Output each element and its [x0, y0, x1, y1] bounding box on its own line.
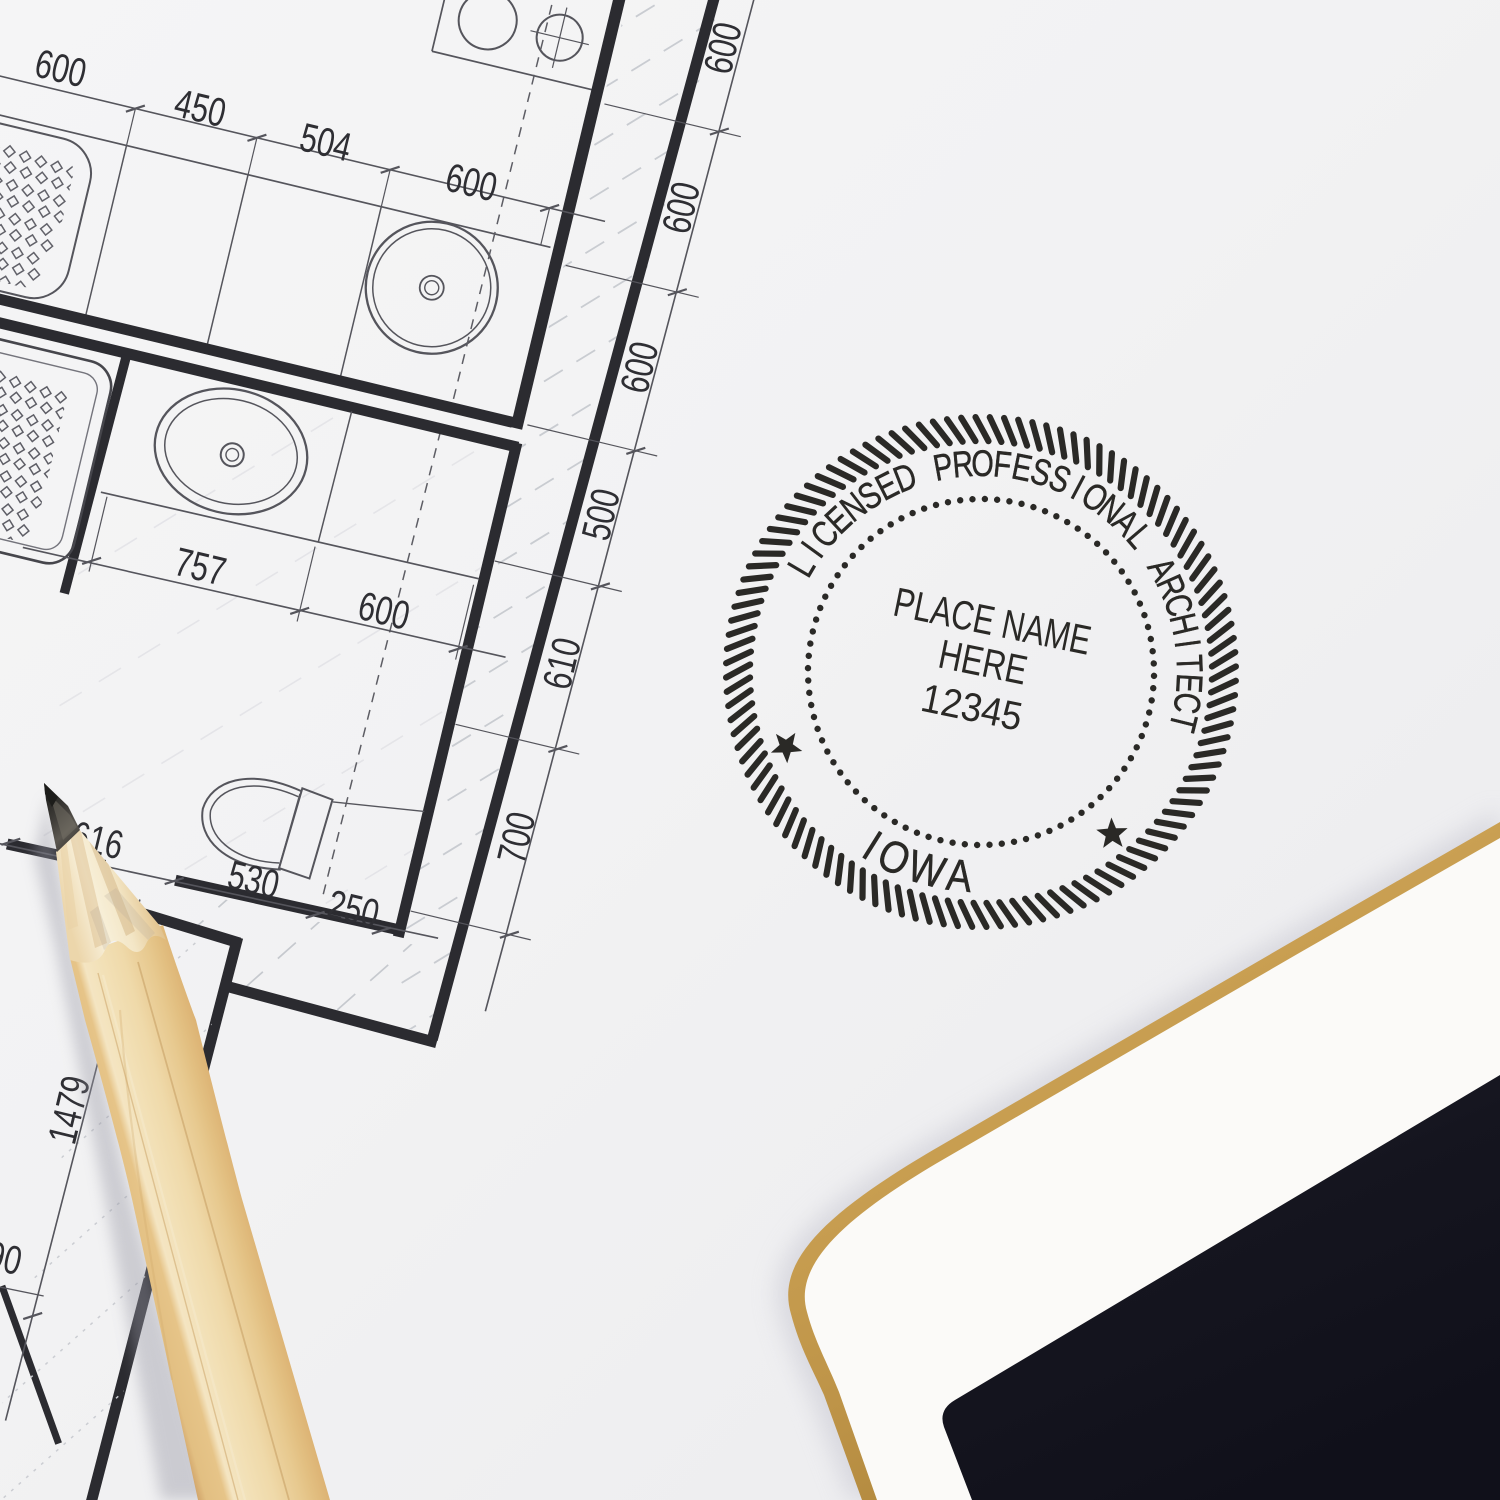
svg-text:T: T — [1168, 654, 1210, 673]
svg-text:O: O — [971, 443, 994, 484]
svg-text:A: A — [944, 849, 975, 902]
